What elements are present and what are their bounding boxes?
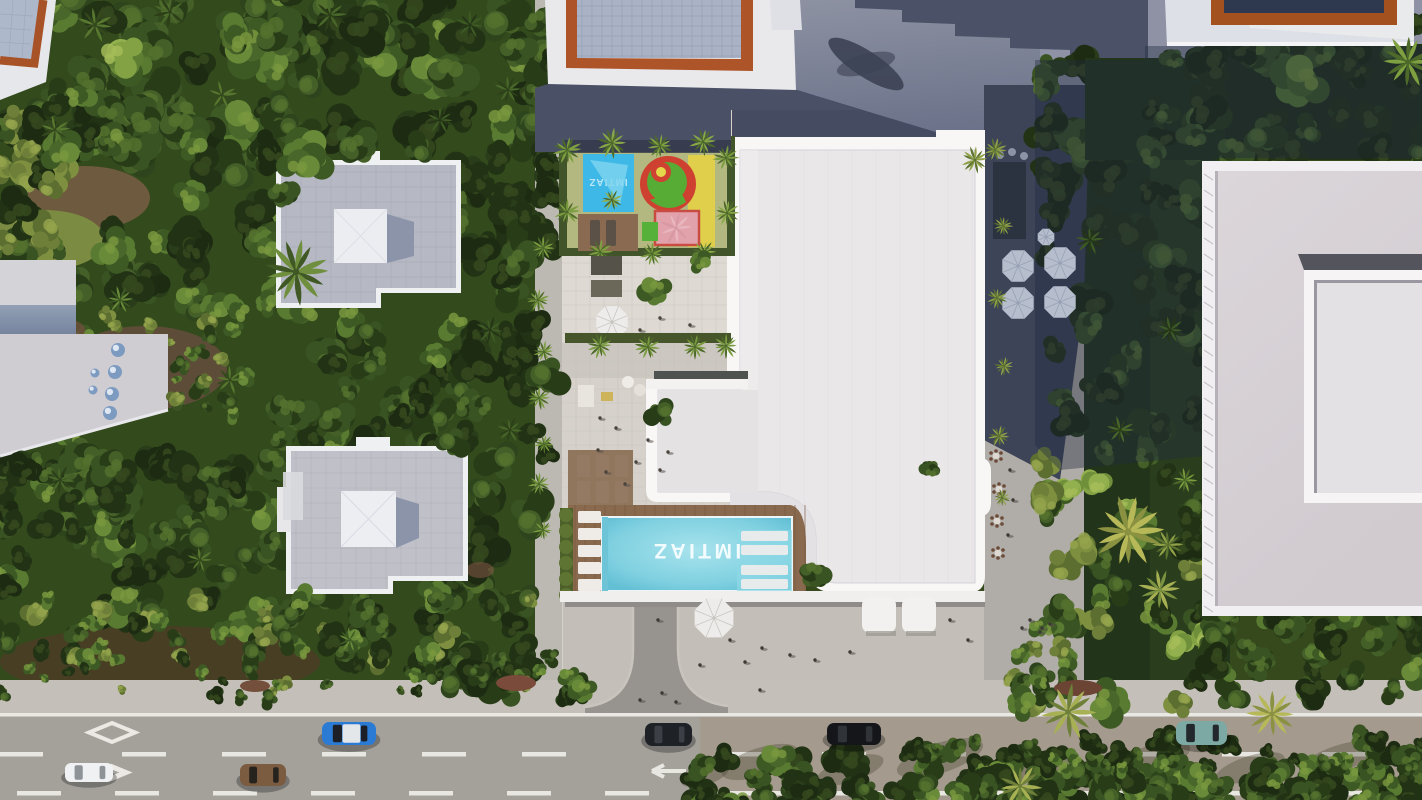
svg-text:IMTIAZ: IMTIAZ bbox=[651, 539, 741, 562]
